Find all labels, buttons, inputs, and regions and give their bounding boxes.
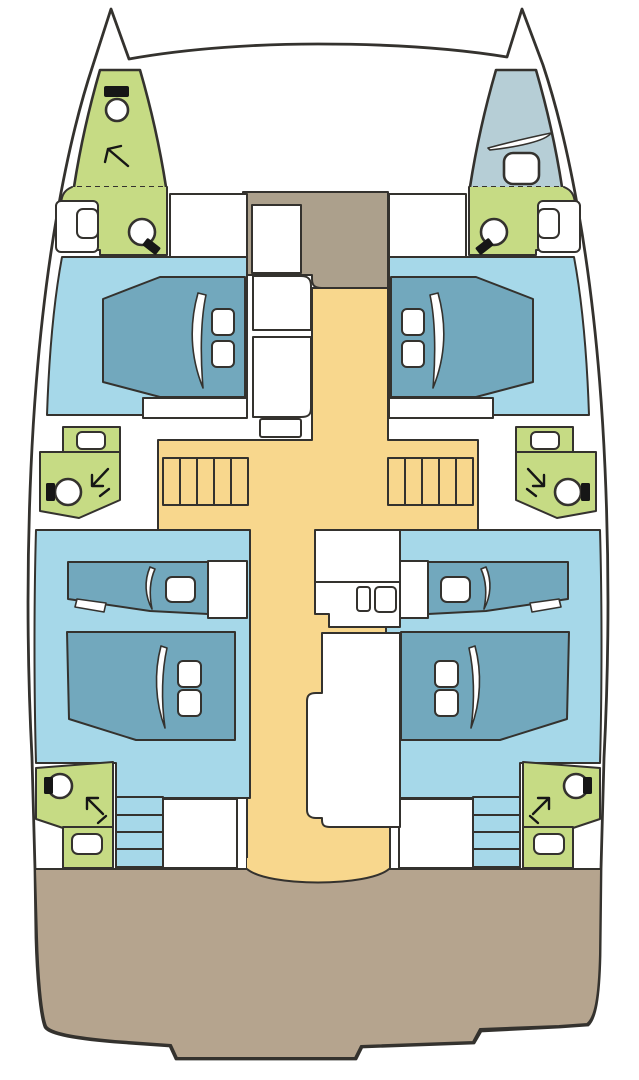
wardrobe <box>170 194 247 257</box>
companionway-steps <box>163 458 248 505</box>
toilet-seatback <box>44 777 53 794</box>
galley-counter-lower <box>253 337 311 417</box>
steps-frame <box>163 458 248 505</box>
sink-icon <box>72 834 102 854</box>
aft-storage-block <box>163 799 237 868</box>
foredeck-cabinet <box>252 205 301 273</box>
pillow <box>212 309 234 335</box>
galley-counter-upper <box>253 276 311 330</box>
forward-double-berth <box>103 277 245 397</box>
floorplan-page <box>0 0 639 1080</box>
galley-landing <box>315 530 400 583</box>
toilet-bowl-icon <box>55 479 81 505</box>
sink-icon <box>77 432 105 449</box>
pillow <box>178 690 201 716</box>
storage-box <box>260 419 301 437</box>
aft-double-berth <box>67 632 235 740</box>
berth-footboard <box>143 398 247 418</box>
berth-side-cabinet <box>208 561 247 618</box>
toilet-seatback <box>46 483 55 501</box>
toilet-tank <box>104 86 129 97</box>
sink-basin-icon <box>375 587 396 612</box>
catamaran-deck-plan <box>0 0 639 1080</box>
sink-icon <box>77 209 98 238</box>
pillow <box>212 341 234 367</box>
aft-steps <box>116 797 163 867</box>
deck-hatch-icon <box>504 153 539 184</box>
sink-basin-icon <box>357 587 370 611</box>
aft-head-floor <box>36 762 113 828</box>
pillow <box>166 577 195 602</box>
toilet-bowl-icon <box>106 99 128 121</box>
pillow <box>178 661 201 687</box>
